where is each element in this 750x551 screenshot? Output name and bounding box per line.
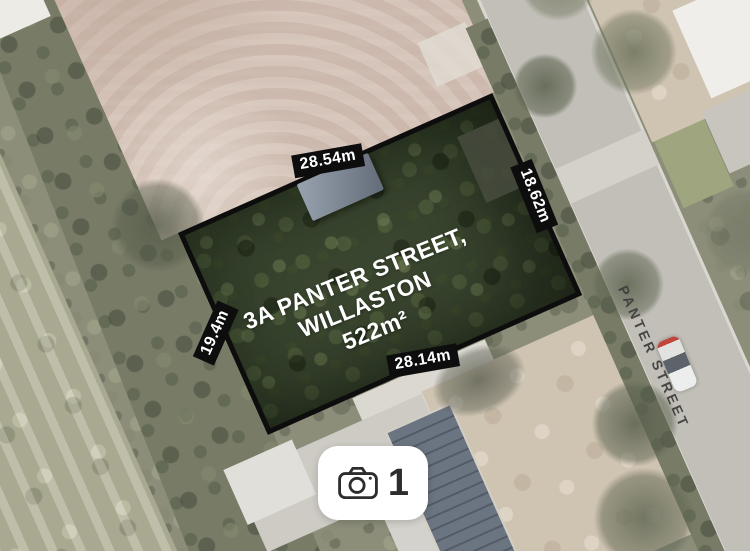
photo-count: 1 (388, 464, 409, 502)
listing-aerial-photo[interactable]: 28.54m 18.62m 19.4m 28.14m 3A PANTER STR… (0, 0, 750, 551)
photo-count-badge[interactable]: 1 (318, 446, 428, 520)
camera-icon (337, 466, 379, 500)
